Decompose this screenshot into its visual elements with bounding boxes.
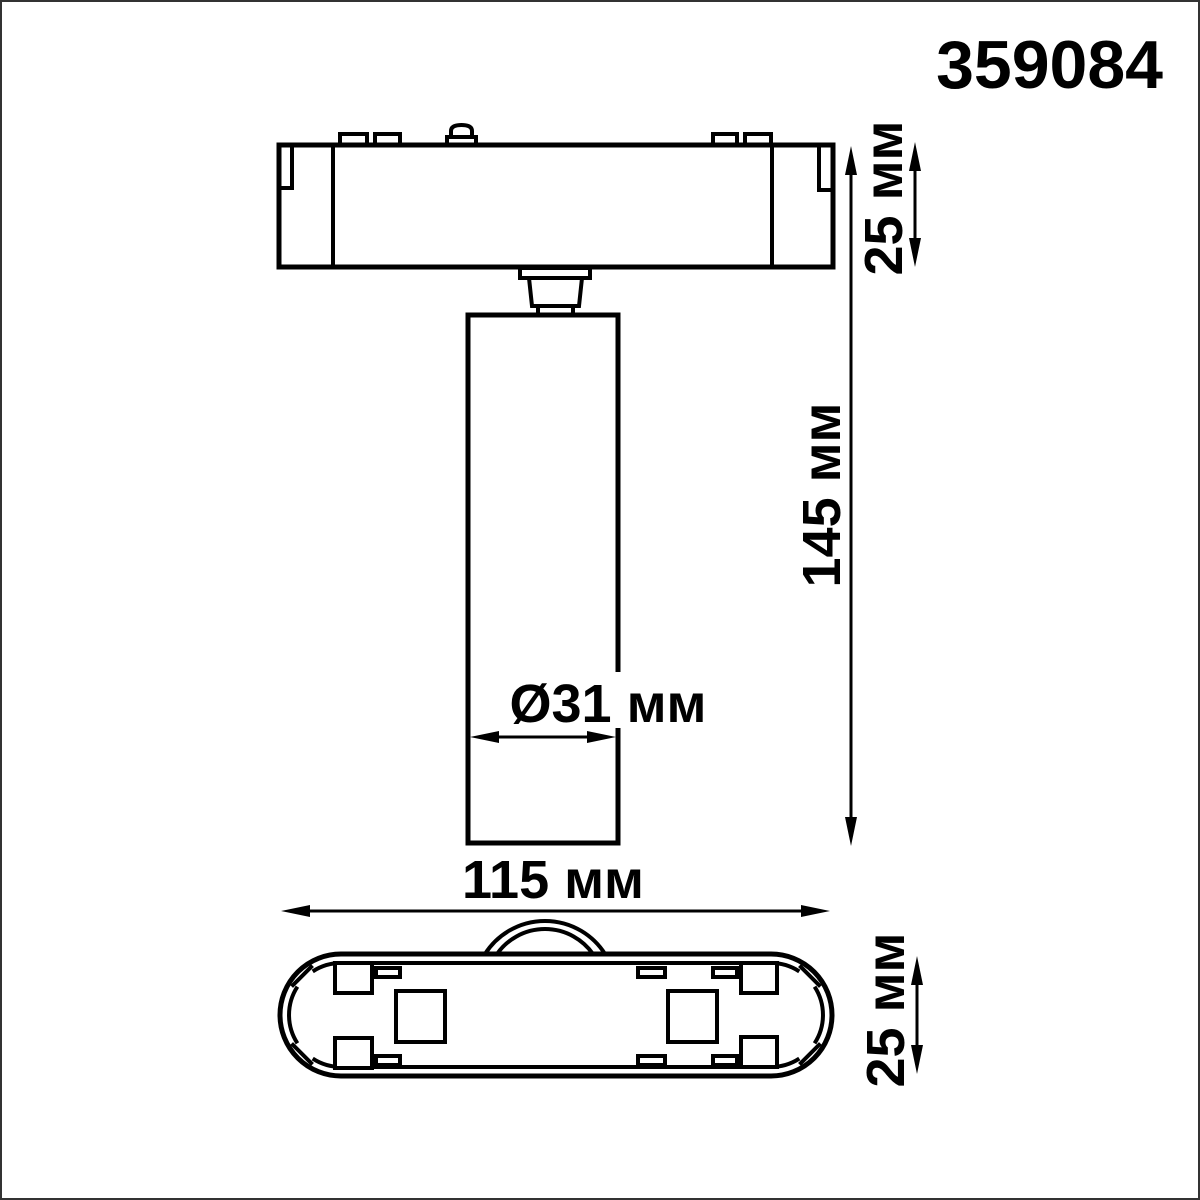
arrowhead-right (801, 905, 830, 917)
technical-drawing: 145 мм 25 мм Ø31 мм 115 мм 25 мм 359084 (0, 0, 1200, 1200)
lock-button (447, 125, 476, 145)
contact-strip (713, 968, 737, 977)
contact-strip (638, 968, 665, 977)
dimension-label-spot-diameter: Ø31 мм (510, 674, 707, 734)
magnet-pad (741, 1037, 777, 1067)
contact-strip (376, 1056, 400, 1065)
contact-strip (713, 1056, 737, 1065)
magnet-block (396, 991, 445, 1042)
dimension-label-overall-height: 145 мм (792, 403, 852, 588)
arrowhead-down (845, 817, 857, 846)
magnet-pad (335, 1038, 372, 1068)
contact-strip (376, 968, 400, 977)
contact-strip (638, 1056, 665, 1065)
dimension-base-depth: 25 мм (856, 933, 923, 1088)
dimension-label-track-module-height: 25 мм (854, 121, 914, 276)
handle-arc-inner (497, 929, 593, 954)
stem-block (529, 278, 582, 306)
arrowhead-left (281, 905, 310, 917)
dimension-label-base-depth: 25 мм (856, 933, 916, 1088)
dimension-label-module-length: 115 мм (462, 850, 644, 910)
bottom-view (280, 921, 832, 1076)
magnet-block (668, 991, 717, 1042)
magnet-pad (741, 963, 777, 993)
track-adapter-body (279, 145, 833, 267)
magnet-pad (335, 963, 372, 993)
dimension-module-length: 115 мм (281, 850, 830, 917)
front-view (279, 125, 833, 843)
handle-arc (485, 921, 605, 954)
spot-cylinder (468, 315, 618, 843)
product-article: 359084 (936, 27, 1163, 103)
dimension-track-module-height: 25 мм (854, 121, 921, 276)
pivot-stem (520, 268, 590, 315)
